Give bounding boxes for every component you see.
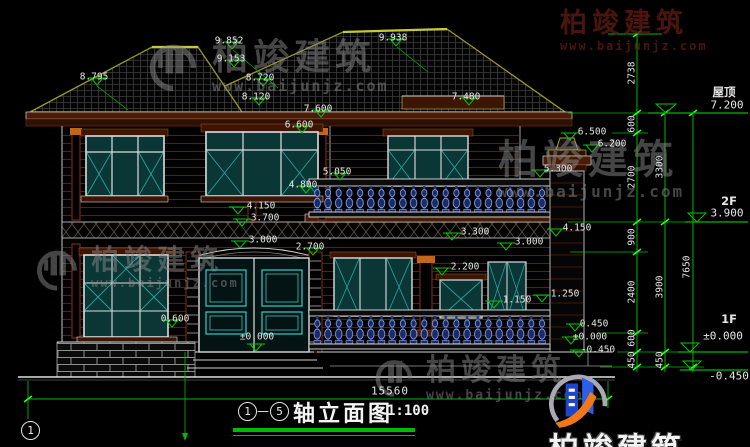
left-wing-roof bbox=[30, 47, 242, 112]
title-underline-thick bbox=[233, 428, 415, 432]
title-axis-end-bubble: 5 bbox=[270, 402, 289, 421]
terrace-balustrade bbox=[309, 310, 550, 349]
title-underline-thin bbox=[233, 435, 415, 436]
entrance-door bbox=[186, 248, 322, 352]
axis-bubble-1-label: 1 bbox=[27, 424, 34, 437]
axis-bubble-1: 1 bbox=[21, 421, 40, 440]
drawing-scale: 1:100 bbox=[387, 403, 429, 419]
drawing-title: 轴立面图 bbox=[293, 396, 393, 428]
title-axis-start: 1 bbox=[244, 405, 251, 418]
title-axis-end: 5 bbox=[276, 405, 283, 418]
elevation-drawing bbox=[0, 0, 750, 447]
gate-pillar bbox=[543, 138, 591, 352]
title-axis-start-bubble: 1 bbox=[238, 402, 257, 421]
balcony-railing bbox=[309, 179, 550, 217]
cad-elevation-screenshot: 9.8529.9389.1538.7958.7208.1207.6007.480… bbox=[0, 0, 750, 447]
title-axis-separator: — bbox=[257, 404, 269, 418]
